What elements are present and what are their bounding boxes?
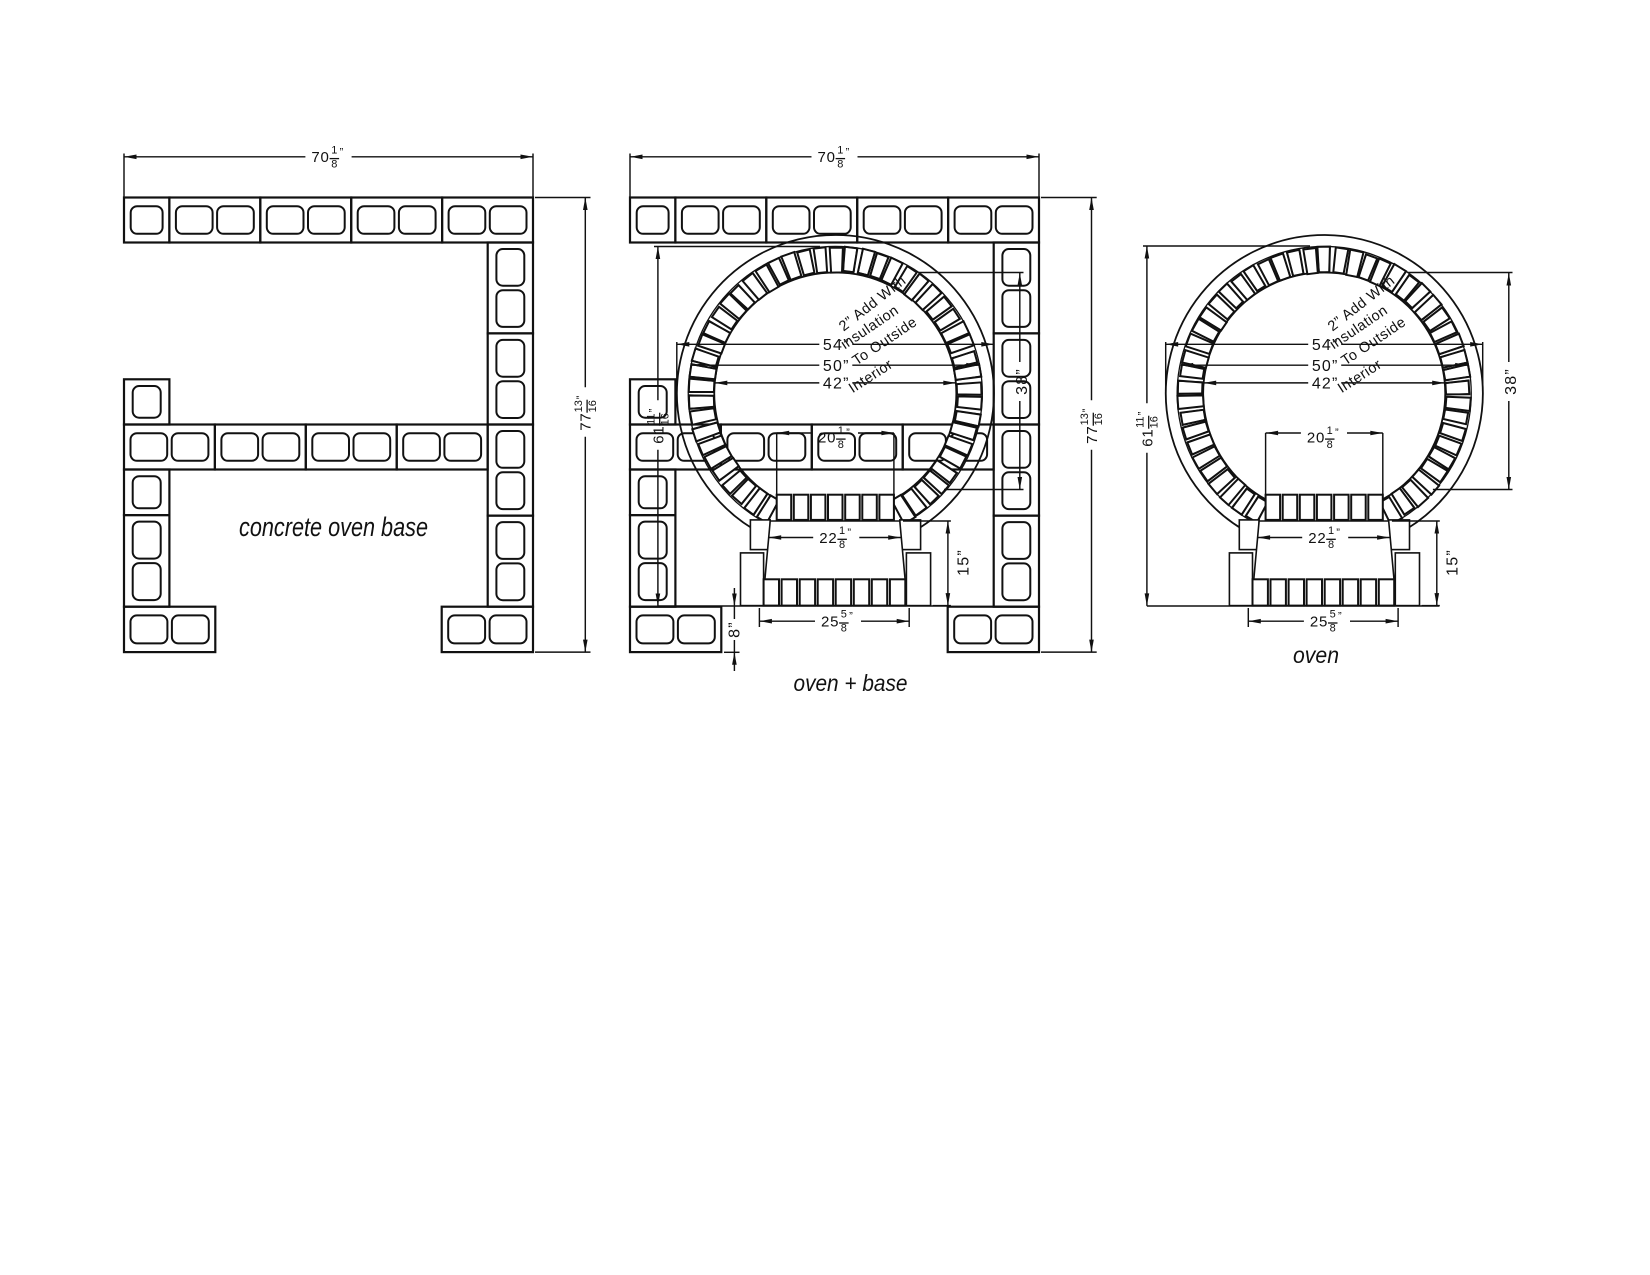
svg-text:”: ”: [340, 146, 344, 158]
svg-text:20: 20: [818, 430, 836, 447]
svg-text:11: 11: [645, 413, 657, 424]
svg-text:11: 11: [1134, 416, 1146, 427]
svg-text:1: 1: [1327, 425, 1333, 437]
svg-text:61: 61: [1139, 429, 1156, 447]
svg-text:16: 16: [587, 400, 599, 412]
svg-text:concrete oven base: concrete oven base: [239, 512, 428, 542]
svg-text:16: 16: [1148, 416, 1160, 428]
svg-text:50”: 50”: [823, 358, 850, 375]
svg-text:16: 16: [659, 413, 671, 425]
svg-text:”: ”: [846, 146, 850, 158]
svg-text:8: 8: [837, 158, 843, 170]
svg-text:61: 61: [650, 426, 667, 444]
svg-text:8: 8: [331, 158, 337, 170]
svg-text:13: 13: [1079, 413, 1091, 425]
svg-text:8: 8: [841, 623, 847, 635]
svg-text:oven: oven: [1293, 642, 1339, 668]
svg-text:8: 8: [838, 439, 844, 451]
svg-text:50”: 50”: [1312, 358, 1339, 375]
svg-text:20: 20: [1307, 430, 1325, 447]
svg-text:15”: 15”: [1444, 549, 1461, 576]
svg-text:8: 8: [1328, 539, 1334, 551]
svg-text:25: 25: [1310, 614, 1328, 631]
svg-text:13: 13: [573, 400, 585, 412]
svg-text:”: ”: [1338, 611, 1342, 623]
svg-text:8: 8: [1327, 439, 1333, 451]
svg-text:77: 77: [578, 413, 595, 431]
svg-text:”: ”: [647, 408, 659, 412]
svg-text:1: 1: [1328, 525, 1334, 537]
svg-text:”: ”: [1136, 411, 1148, 415]
svg-text:38”: 38”: [1014, 368, 1031, 395]
svg-text:1: 1: [839, 525, 845, 537]
svg-text:”: ”: [1081, 408, 1093, 412]
svg-text:8: 8: [1330, 623, 1336, 635]
svg-text:”: ”: [1335, 427, 1339, 439]
svg-text:1: 1: [837, 144, 843, 156]
svg-text:70: 70: [818, 149, 836, 166]
svg-text:77: 77: [1084, 426, 1101, 444]
svg-text:”: ”: [575, 395, 587, 399]
svg-text:5: 5: [1330, 609, 1336, 621]
svg-text:1: 1: [838, 425, 844, 437]
svg-text:5: 5: [841, 609, 847, 621]
svg-text:”: ”: [1336, 527, 1340, 539]
svg-text:oven + base: oven + base: [794, 670, 908, 696]
svg-text:25: 25: [821, 614, 839, 631]
svg-text:70: 70: [311, 149, 329, 166]
svg-text:8”: 8”: [727, 621, 744, 638]
svg-text:38”: 38”: [1503, 368, 1520, 395]
svg-text:16: 16: [1093, 413, 1105, 425]
svg-text:22: 22: [819, 530, 837, 547]
svg-text:8: 8: [839, 539, 845, 551]
svg-text:15”: 15”: [955, 549, 972, 576]
svg-text:1: 1: [331, 144, 337, 156]
svg-text:”: ”: [849, 611, 853, 623]
svg-text:”: ”: [846, 427, 850, 439]
svg-text:”: ”: [847, 527, 851, 539]
svg-text:22: 22: [1308, 530, 1326, 547]
